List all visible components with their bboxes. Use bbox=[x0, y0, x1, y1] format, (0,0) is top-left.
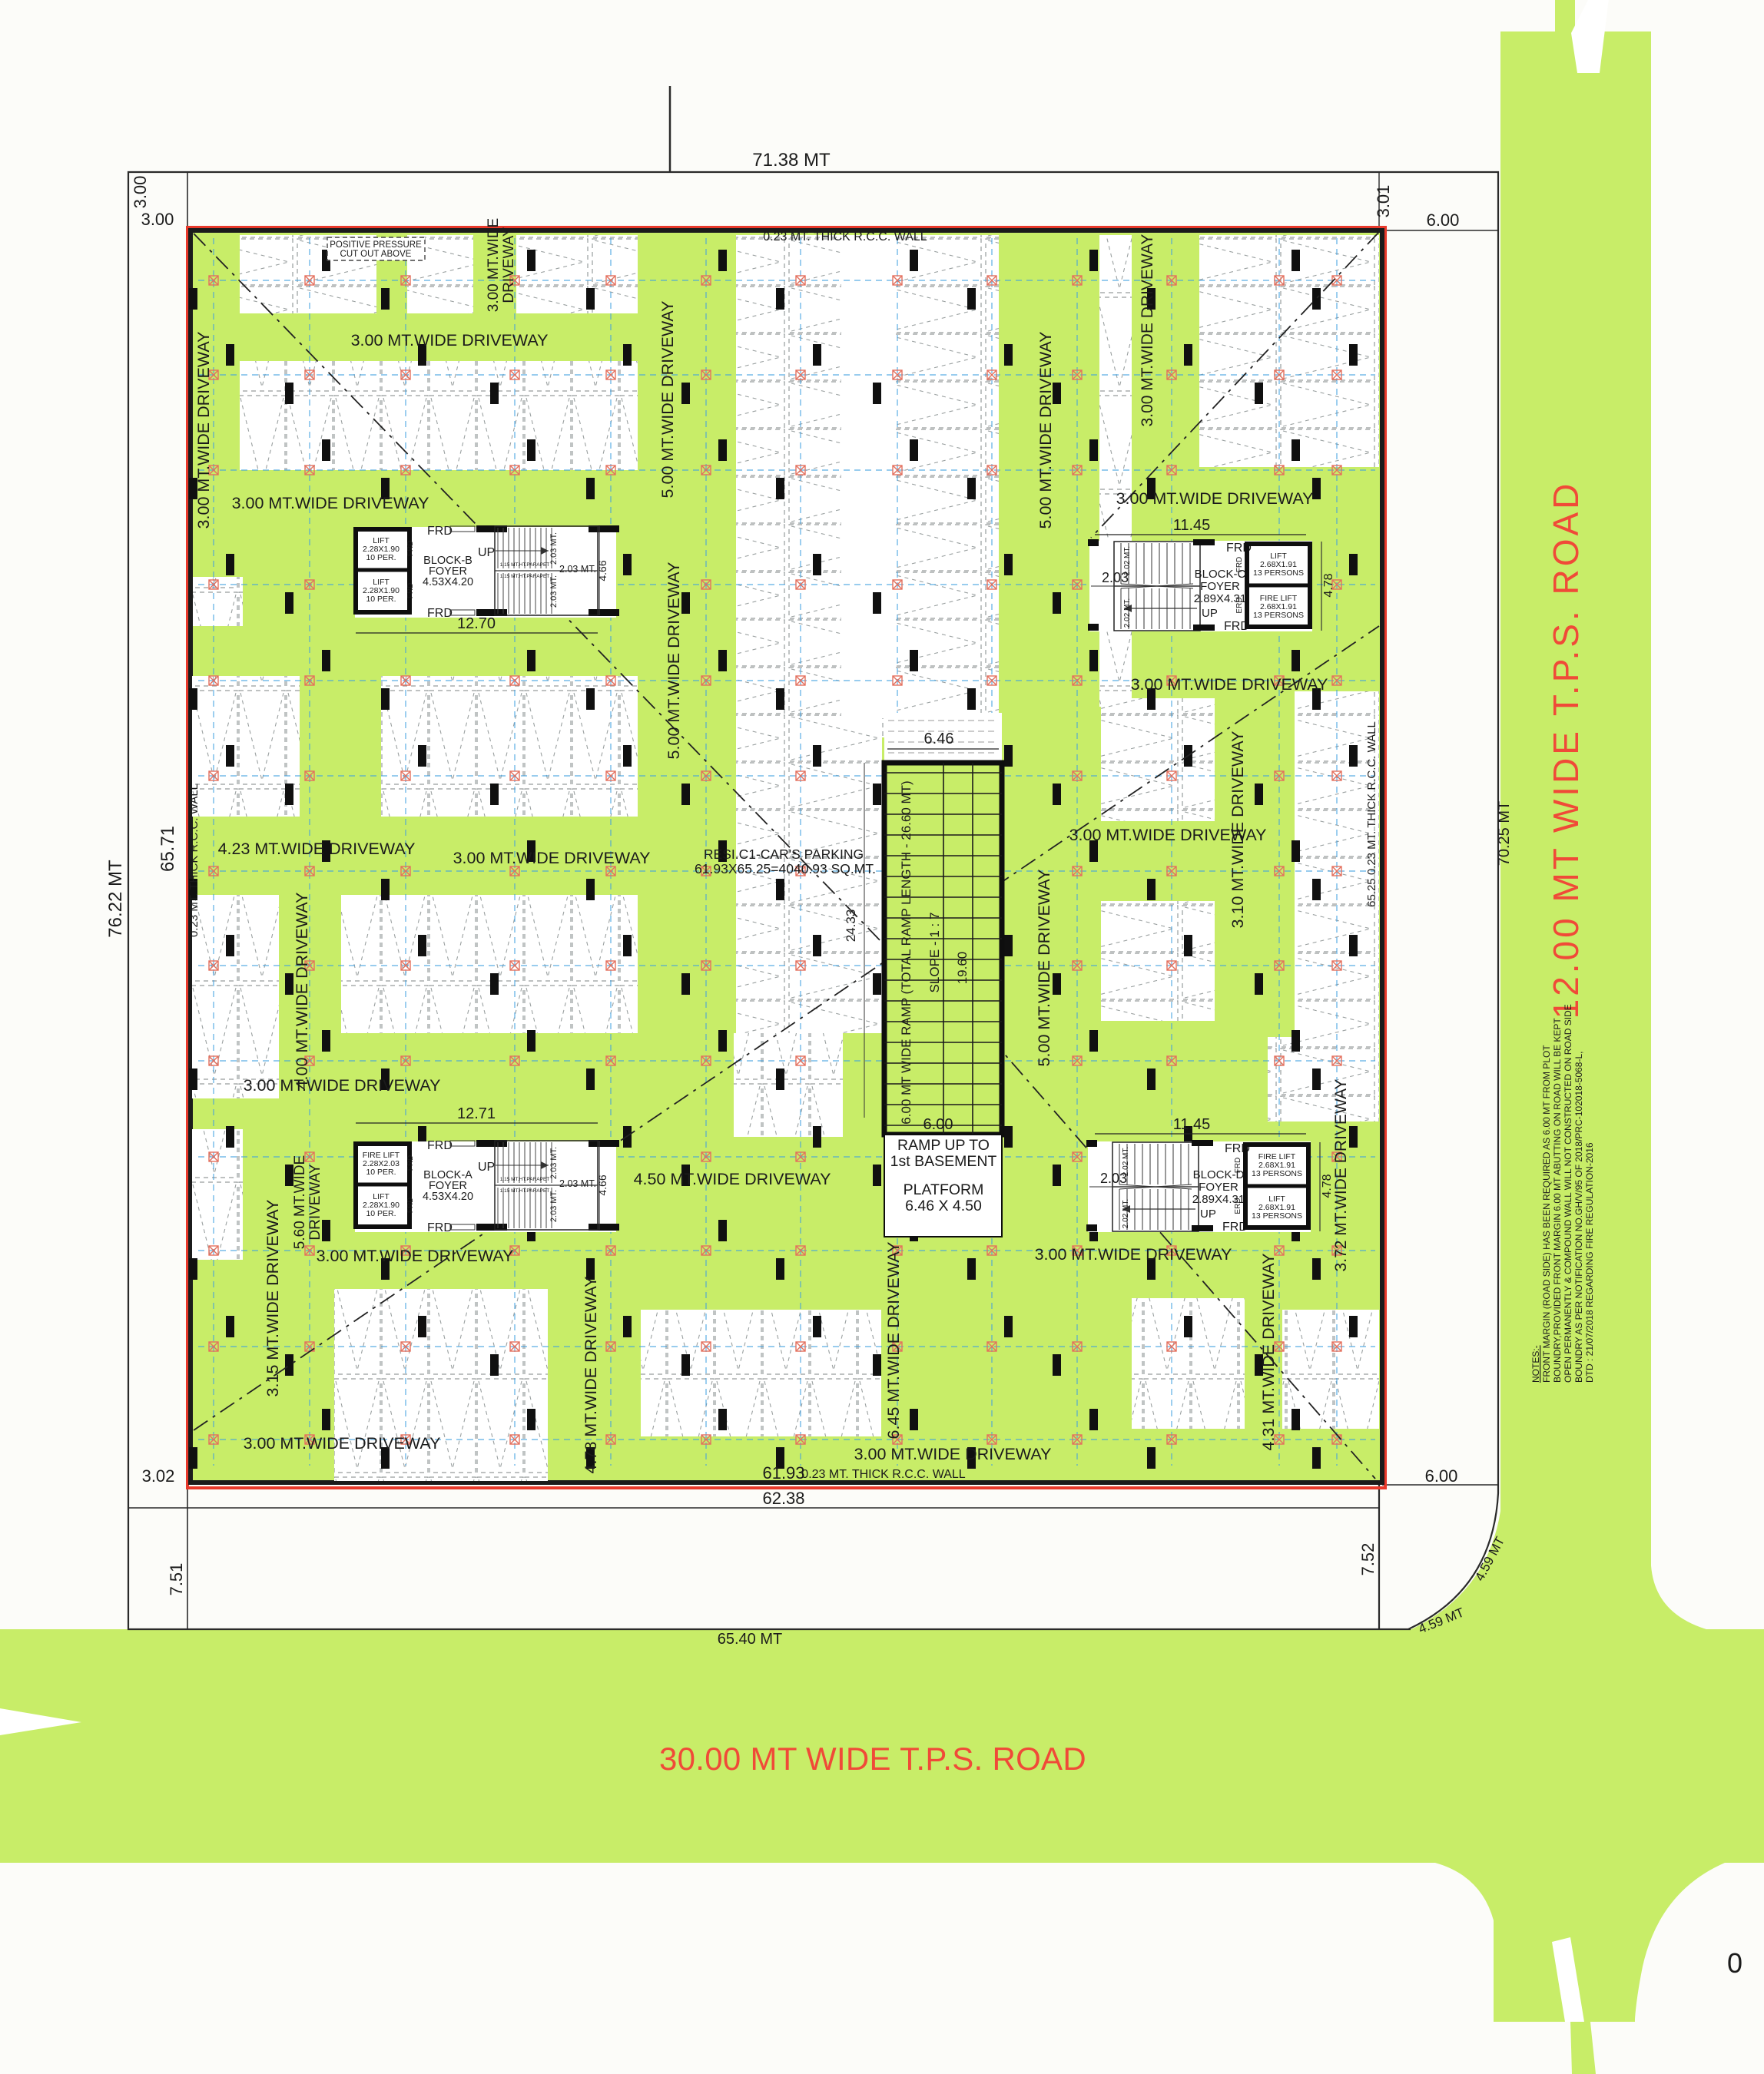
svg-text:FRD: FRD bbox=[427, 1139, 453, 1152]
svg-text:0.23 MT. THICK R.C.C. WALL: 0.23 MT. THICK R.C.C. WALL bbox=[801, 1468, 965, 1481]
svg-text:12.71: 12.71 bbox=[457, 1105, 496, 1122]
svg-text:FRD: FRD bbox=[406, 1155, 415, 1171]
svg-text:NOTES:-: NOTES:- bbox=[1530, 1345, 1541, 1383]
svg-text:1.15 MT.HT.PARAPET: 1.15 MT.HT.PARAPET bbox=[500, 1188, 550, 1194]
svg-text:DRIVEWAY: DRIVEWAY bbox=[501, 227, 517, 303]
svg-text:4.23 MT.WIDE DRIVEWAY: 4.23 MT.WIDE DRIVEWAY bbox=[218, 840, 416, 858]
svg-text:PLATFORM: PLATFORM bbox=[904, 1181, 984, 1198]
svg-text:13 PERSONS: 13 PERSONS bbox=[1253, 611, 1304, 620]
svg-text:6.46 X 4.50: 6.46 X 4.50 bbox=[905, 1198, 982, 1214]
svg-text:19.60: 19.60 bbox=[955, 952, 970, 985]
svg-text:7.51: 7.51 bbox=[167, 1563, 186, 1596]
svg-text:2.02 MT.: 2.02 MT. bbox=[1122, 1199, 1130, 1228]
svg-text:1.15 MT.HT.PARAPET: 1.15 MT.HT.PARAPET bbox=[500, 562, 550, 568]
svg-text:6.00: 6.00 bbox=[1427, 210, 1460, 230]
svg-text:3.00 MT.WIDE DRIVEWAY: 3.00 MT.WIDE DRIVEWAY bbox=[1035, 1245, 1232, 1264]
svg-text:2.03 MT.: 2.03 MT. bbox=[549, 575, 559, 608]
svg-text:61.93: 61.93 bbox=[762, 1463, 804, 1483]
svg-text:FRD: FRD bbox=[427, 525, 453, 538]
svg-text:2.03 MT.: 2.03 MT. bbox=[549, 1147, 559, 1179]
svg-text:3.00 MT.WIDE DRIVEWAY: 3.00 MT.WIDE DRIVEWAY bbox=[1116, 489, 1314, 508]
svg-text:UP: UP bbox=[1202, 607, 1218, 620]
svg-text:0.23 MT. THICK R.C.C. WALL: 0.23 MT. THICK R.C.C. WALL bbox=[187, 784, 201, 937]
svg-text:5.00 MT.WIDE DRIVEWAY: 5.00 MT.WIDE DRIVEWAY bbox=[1036, 332, 1055, 529]
svg-text:13 PERSONS: 13 PERSONS bbox=[1252, 1211, 1302, 1221]
svg-text:76.22 MT: 76.22 MT bbox=[105, 860, 126, 938]
svg-text:6.46: 6.46 bbox=[924, 731, 954, 747]
svg-text:12.00 MT WIDE T.P.S. ROAD: 12.00 MT WIDE T.P.S. ROAD bbox=[1546, 481, 1586, 1019]
svg-text:3.00 MT.WIDE DRIVEWAY: 3.00 MT.WIDE DRIVEWAY bbox=[1131, 675, 1328, 694]
svg-text:OPEN PERMANENTLY & COMPOUND WA: OPEN PERMANENTLY & COMPOUND WALL WILL NO… bbox=[1563, 1004, 1573, 1383]
svg-text:3.00: 3.00 bbox=[141, 210, 174, 229]
svg-text:4.78 MT.WIDE DRIVEWAY: 4.78 MT.WIDE DRIVEWAY bbox=[582, 1277, 600, 1474]
svg-text:FRD: FRD bbox=[427, 1221, 453, 1234]
svg-text:65.71: 65.71 bbox=[157, 826, 178, 872]
svg-text:3.00 MT.WIDE DRIVEWAY: 3.00 MT.WIDE DRIVEWAY bbox=[317, 1247, 514, 1265]
svg-text:5.00 MT.WIDE DRIVEWAY: 5.00 MT.WIDE DRIVEWAY bbox=[658, 301, 677, 499]
svg-text:3.72 MT.WIDE DRIVEWAY: 3.72 MT.WIDE DRIVEWAY bbox=[1332, 1079, 1350, 1272]
svg-text:3.00 MT.WIDE: 3.00 MT.WIDE bbox=[486, 218, 502, 312]
svg-text:10 PER.: 10 PER. bbox=[366, 595, 396, 604]
svg-text:1.15 MT.HT.PARAPET: 1.15 MT.HT.PARAPET bbox=[500, 1177, 550, 1182]
svg-text:11.45: 11.45 bbox=[1173, 1116, 1211, 1133]
svg-text:3.00 MT.WIDE DRIVEWAY: 3.00 MT.WIDE DRIVEWAY bbox=[232, 494, 429, 512]
svg-text:24.33: 24.33 bbox=[844, 909, 858, 943]
svg-text:4.66: 4.66 bbox=[596, 1174, 608, 1195]
svg-text:1.15 MT.HT.PARAPET: 1.15 MT.HT.PARAPET bbox=[500, 574, 550, 579]
svg-text:UP: UP bbox=[1200, 1208, 1216, 1221]
svg-text:3.15 MT.WIDE DRIVEWAY: 3.15 MT.WIDE DRIVEWAY bbox=[264, 1200, 282, 1397]
svg-text:65.25 0.23 MT. THICK R.C.C. W: 65.25 0.23 MT. THICK R.C.C. WALL bbox=[1365, 721, 1378, 907]
svg-text:5.00 MT.WIDE DRIVEWAY: 5.00 MT.WIDE DRIVEWAY bbox=[665, 562, 683, 760]
svg-text:10 PER.: 10 PER. bbox=[366, 1168, 396, 1177]
svg-text:3.00 MT.WIDE DRIVEWAY: 3.00 MT.WIDE DRIVEWAY bbox=[244, 1434, 441, 1453]
svg-text:5.00 MT.WIDE DRIVEWAY: 5.00 MT.WIDE DRIVEWAY bbox=[1035, 870, 1053, 1067]
svg-text:61.93X65.25=4040.93 SQ.MT.: 61.93X65.25=4040.93 SQ.MT. bbox=[695, 861, 876, 876]
svg-text:12.70: 12.70 bbox=[457, 615, 496, 632]
svg-text:FRD: FRD bbox=[406, 1198, 415, 1214]
svg-text:70.25 MT: 70.25 MT bbox=[1496, 801, 1513, 866]
svg-text:FRD: FRD bbox=[406, 541, 415, 557]
svg-text:7.52: 7.52 bbox=[1358, 1543, 1378, 1576]
svg-text:0.23 MT. THICK R.C.C. WALL: 0.23 MT. THICK R.C.C. WALL bbox=[763, 230, 927, 244]
svg-text:13 PERSONS: 13 PERSONS bbox=[1252, 1169, 1302, 1178]
svg-text:2.03 MT.: 2.03 MT. bbox=[549, 1190, 559, 1222]
svg-text:FRD: FRD bbox=[427, 607, 453, 620]
svg-text:1st BASEMENT: 1st BASEMENT bbox=[890, 1153, 997, 1170]
svg-text:65.40 MT: 65.40 MT bbox=[718, 1631, 782, 1648]
svg-text:2.02 MT.: 2.02 MT. bbox=[1123, 598, 1132, 628]
svg-text:3.00: 3.00 bbox=[131, 176, 150, 209]
svg-text:BOUNDRY,PROVIDED FRONT MARGIN: BOUNDRY,PROVIDED FRONT MARGIN 6.00 MT AB… bbox=[1552, 1018, 1563, 1383]
svg-text:BOUNDRY AS PER NOTIFICATION NO: BOUNDRY AS PER NOTIFICATION NO.GH/V/95 O… bbox=[1573, 1052, 1584, 1383]
svg-text:3.00 MT.WIDE DRIVEWAY: 3.00 MT.WIDE DRIVEWAY bbox=[854, 1445, 1052, 1463]
svg-text:10 PER.: 10 PER. bbox=[366, 553, 396, 562]
svg-text:0: 0 bbox=[1727, 1947, 1742, 1979]
svg-text:UP: UP bbox=[478, 546, 495, 559]
svg-text:FOYER: FOYER bbox=[1200, 580, 1240, 593]
svg-text:71.38 MT: 71.38 MT bbox=[752, 150, 831, 171]
svg-text:10 PER.: 10 PER. bbox=[366, 1209, 396, 1218]
svg-text:2.03 MT.: 2.03 MT. bbox=[559, 564, 596, 575]
svg-text:6.00: 6.00 bbox=[923, 1116, 953, 1133]
svg-text:5.60 MT.WIDE: 5.60 MT.WIDE bbox=[292, 1155, 308, 1249]
svg-text:2.03: 2.03 bbox=[1102, 570, 1129, 585]
svg-text:30.00 MT WIDE T.P.S. ROAD: 30.00 MT WIDE T.P.S. ROAD bbox=[659, 1741, 1086, 1777]
svg-text:3.00 MT.WIDE DRIVEWAY: 3.00 MT.WIDE DRIVEWAY bbox=[453, 849, 651, 867]
svg-text:4.00 MT.WIDE DRIVEWAY: 4.00 MT.WIDE DRIVEWAY bbox=[293, 893, 311, 1090]
svg-text:6.00: 6.00 bbox=[1425, 1466, 1458, 1486]
svg-text:UP: UP bbox=[478, 1161, 495, 1174]
svg-text:CUT OUT ABOVE: CUT OUT ABOVE bbox=[340, 250, 412, 259]
svg-text:FRD: FRD bbox=[406, 583, 415, 599]
svg-text:DRIVEWAY: DRIVEWAY bbox=[307, 1164, 323, 1241]
svg-text:6.00 MT WIDE RAMP (TOTAL RAMP: 6.00 MT WIDE RAMP (TOTAL RAMP LENGTH - 2… bbox=[899, 780, 913, 1124]
svg-text:4.66: 4.66 bbox=[596, 560, 608, 581]
svg-text:RESI.C1-CAR'S PARKING: RESI.C1-CAR'S PARKING bbox=[704, 846, 864, 862]
svg-text:13 PERSONS: 13 PERSONS bbox=[1253, 568, 1304, 578]
svg-text:4.78: 4.78 bbox=[1322, 573, 1335, 597]
svg-text:3.00 MT.WIDE DRIVEWAY: 3.00 MT.WIDE DRIVEWAY bbox=[351, 331, 549, 350]
svg-text:11.45: 11.45 bbox=[1173, 517, 1211, 534]
svg-text:FRONT MARGIN (ROAD SIDE) HAS B: FRONT MARGIN (ROAD SIDE) HAS BEEN REQUIR… bbox=[1541, 1045, 1552, 1383]
svg-text:3.00 MT.WIDE DRIVEWAY: 3.00 MT.WIDE DRIVEWAY bbox=[244, 1076, 441, 1095]
svg-text:DTD : 21/07/2018 REGARDING FIR: DTD : 21/07/2018 REGARDING FIRE REGULATI… bbox=[1584, 1142, 1595, 1383]
svg-text:4.53X4.20: 4.53X4.20 bbox=[423, 576, 473, 588]
svg-text:3.01: 3.01 bbox=[1374, 185, 1393, 218]
svg-text:FRD: FRD bbox=[1234, 1158, 1242, 1174]
svg-text:3.00 MT.WIDE DRIVEWAY: 3.00 MT.WIDE DRIVEWAY bbox=[1139, 234, 1156, 427]
svg-text:ERD: ERD bbox=[1235, 597, 1244, 613]
svg-text:2.03: 2.03 bbox=[1100, 1171, 1127, 1186]
svg-text:SLOPE - 1 : 7: SLOPE - 1 : 7 bbox=[927, 913, 942, 993]
svg-text:4.31 MT.WIDE DRIVEWAY: 4.31 MT.WIDE DRIVEWAY bbox=[1259, 1254, 1278, 1451]
svg-text:4.53X4.20: 4.53X4.20 bbox=[423, 1191, 473, 1203]
svg-text:3.10 MT.WIDE DRIVEWAY: 3.10 MT.WIDE DRIVEWAY bbox=[1228, 731, 1247, 929]
svg-text:4.50 MT.WIDE DRIVEWAY: 4.50 MT.WIDE DRIVEWAY bbox=[634, 1170, 831, 1188]
svg-text:ERD: ERD bbox=[1234, 1198, 1242, 1214]
svg-text:FRD: FRD bbox=[1235, 557, 1244, 573]
svg-text:2.03 MT.: 2.03 MT. bbox=[549, 532, 559, 565]
svg-text:POSITIVE PRESSURE: POSITIVE PRESSURE bbox=[330, 240, 422, 250]
svg-text:3.00 MT.WIDE DRIVEWAY: 3.00 MT.WIDE DRIVEWAY bbox=[194, 332, 213, 529]
svg-text:6.45 MT.WIDE DRIVEWAY: 6.45 MT.WIDE DRIVEWAY bbox=[884, 1242, 903, 1440]
svg-text:2.03 MT.: 2.03 MT. bbox=[559, 1178, 596, 1189]
svg-text:3.02: 3.02 bbox=[142, 1466, 175, 1486]
svg-text:FOYER: FOYER bbox=[1199, 1181, 1238, 1194]
svg-text:RAMP UP TO: RAMP UP TO bbox=[897, 1137, 990, 1154]
svg-text:62.38: 62.38 bbox=[762, 1489, 804, 1508]
